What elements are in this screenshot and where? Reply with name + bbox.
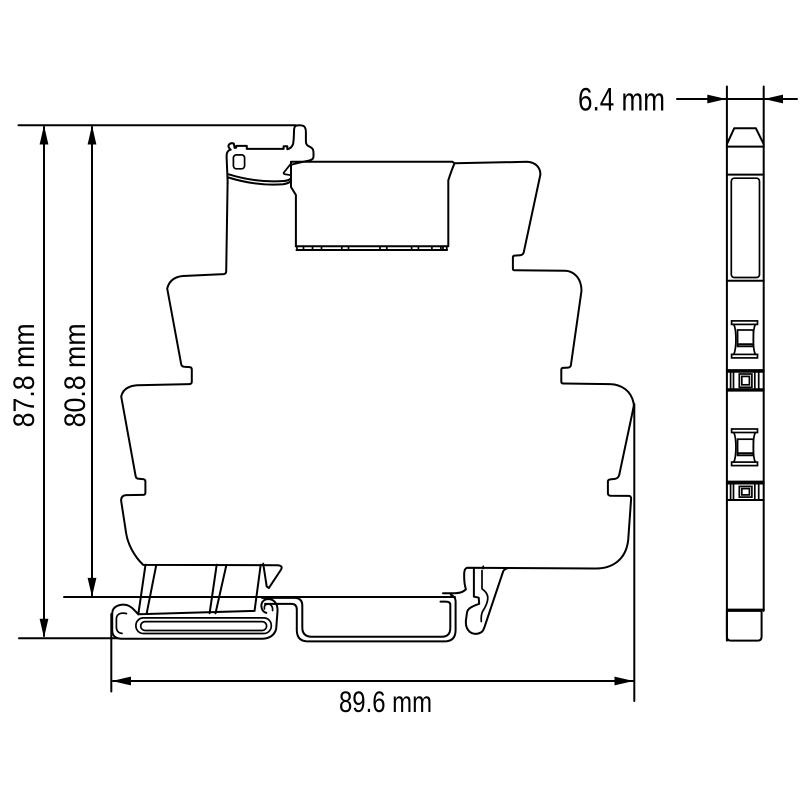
svg-text:80.8 mm: 80.8 mm — [59, 323, 92, 427]
svg-text:6.4 mm: 6.4 mm — [578, 82, 665, 118]
svg-text:87.8 mm: 87.8 mm — [8, 323, 41, 427]
svg-text:89.6 mm: 89.6 mm — [339, 686, 432, 719]
